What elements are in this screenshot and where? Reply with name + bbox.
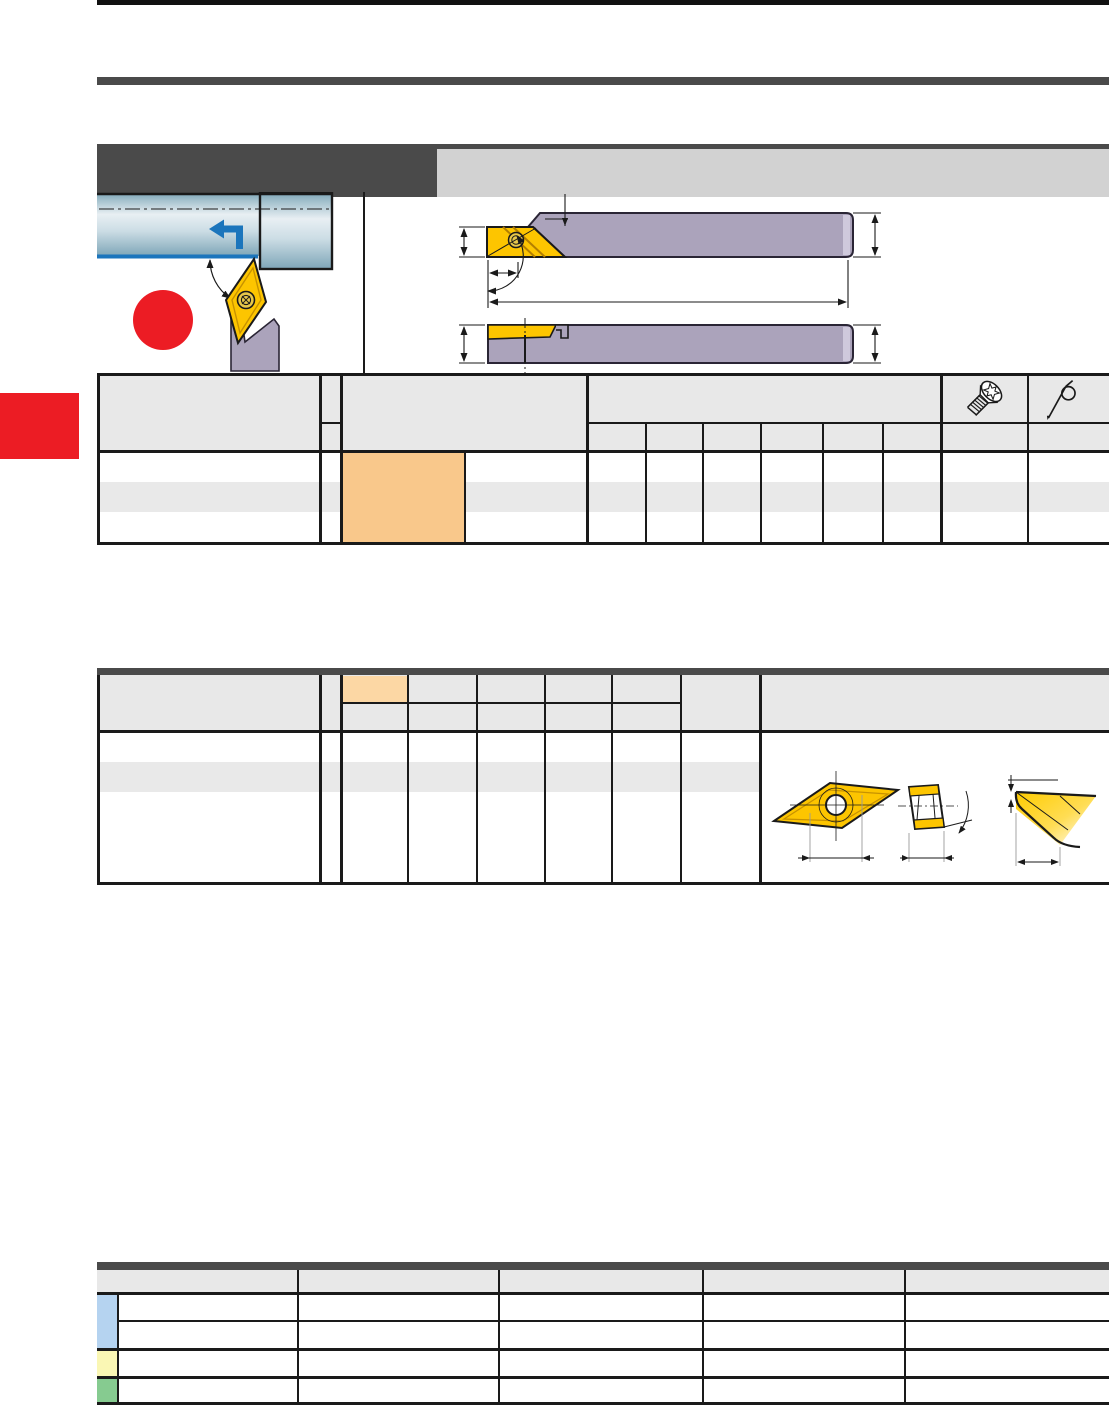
grid-line xyxy=(97,542,1109,545)
side-index-tab xyxy=(0,393,79,459)
grid-line xyxy=(1027,373,1029,545)
insert-corner-detail xyxy=(1016,792,1096,845)
holder-end-face xyxy=(843,215,850,255)
grid-line xyxy=(476,675,478,885)
row-marker-blue xyxy=(97,1295,117,1348)
grid-line xyxy=(319,373,322,545)
workpiece-turned-section xyxy=(97,193,260,256)
insert-view-diagrams xyxy=(762,733,1109,882)
grid-line xyxy=(702,422,704,545)
machined-surface-highlight xyxy=(97,255,258,259)
grid-line xyxy=(97,373,100,545)
grid-line xyxy=(97,373,1109,376)
red-marker-dot xyxy=(133,290,193,350)
grid-line xyxy=(319,675,322,885)
holder-side-view-body xyxy=(528,213,853,257)
grid-line xyxy=(645,422,647,545)
dim-arrow xyxy=(1008,784,1014,792)
torx-screw-icon xyxy=(960,377,1006,423)
dim-arrow xyxy=(902,855,909,861)
grid-line xyxy=(680,675,682,885)
insert-seat-top-view xyxy=(488,325,556,339)
dim-arrow xyxy=(802,855,810,861)
holder-table-alt-row xyxy=(97,482,1109,512)
title-block xyxy=(97,144,437,197)
grid-line xyxy=(940,373,943,545)
grid-line xyxy=(97,882,1109,885)
grid-line xyxy=(498,1270,500,1405)
grid-line xyxy=(340,675,343,885)
dim-clearance-angle-arc xyxy=(959,791,968,833)
grid-line xyxy=(464,450,466,545)
grid-line xyxy=(340,373,343,545)
application-figure xyxy=(97,192,364,373)
grid-line xyxy=(97,675,100,885)
grid-line xyxy=(97,450,1109,453)
grid-line xyxy=(97,1402,1109,1405)
catalog-page xyxy=(0,0,1109,1408)
grid-line xyxy=(117,1292,119,1405)
dim-arrow xyxy=(944,855,952,861)
grid-line xyxy=(407,675,409,885)
insert-table-bar xyxy=(97,668,1109,675)
grid-line xyxy=(97,1292,1109,1295)
holder-dimension-drawing xyxy=(364,192,1109,373)
section-bar xyxy=(97,77,1109,85)
grid-line xyxy=(882,422,884,545)
dim-arrow xyxy=(862,855,870,861)
row-marker-yellow xyxy=(97,1351,117,1376)
workpiece-stock-section xyxy=(260,193,332,269)
grid-line xyxy=(97,1348,1109,1351)
holder-table-highlight-cell xyxy=(342,452,464,542)
grid-line xyxy=(586,373,589,545)
angle-reference-line xyxy=(944,820,972,827)
grid-line xyxy=(822,422,824,545)
insert-top-face xyxy=(909,785,939,796)
grid-line xyxy=(587,422,1109,424)
row-marker-green xyxy=(97,1379,117,1402)
grid-line xyxy=(544,675,546,885)
holder-end-face xyxy=(843,327,850,361)
holder-table-header-bg xyxy=(97,376,1109,450)
grid-line xyxy=(904,1270,906,1405)
key-wrench-icon xyxy=(1038,377,1080,421)
info-table-bar xyxy=(97,1262,1109,1270)
grid-line xyxy=(342,702,682,704)
grid-line xyxy=(97,1376,1109,1379)
insert-table-alt-row xyxy=(97,762,760,792)
grid-line xyxy=(702,1270,704,1405)
grid-line xyxy=(611,675,613,885)
info-table-header-bg xyxy=(97,1270,1109,1292)
grid-line xyxy=(760,422,762,545)
lead-angle-arc xyxy=(210,260,230,298)
subtitle-strip xyxy=(437,149,1109,197)
insert-bottom-face xyxy=(914,818,944,829)
top-rule xyxy=(97,0,1109,5)
grid-line xyxy=(117,1320,1109,1322)
grid-line xyxy=(320,422,341,424)
grid-line xyxy=(297,1270,299,1405)
insert-table-highlight-cell xyxy=(342,676,408,703)
